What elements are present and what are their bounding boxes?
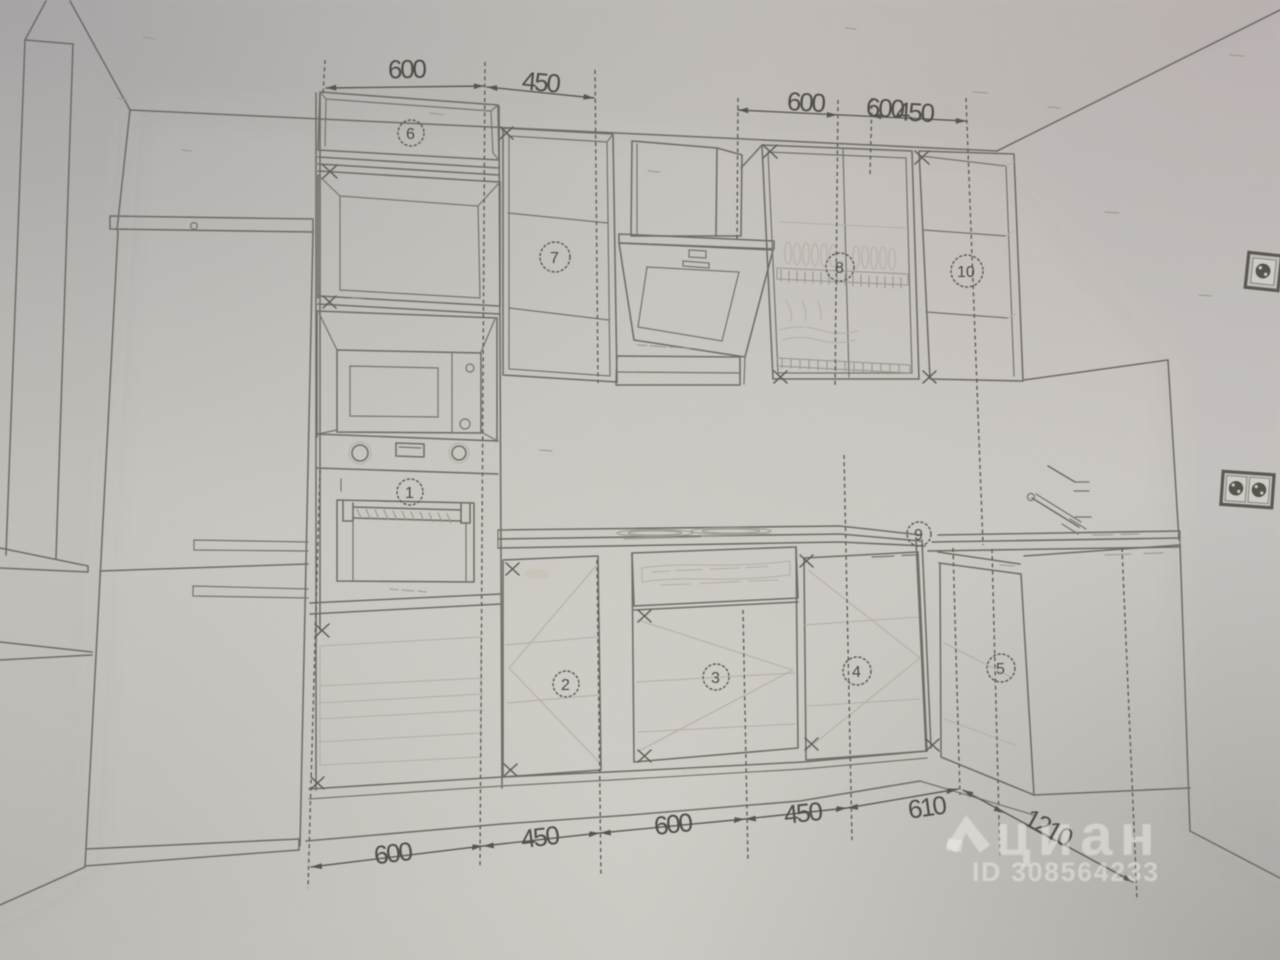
svg-text:450: 450: [519, 820, 561, 854]
svg-text:600: 600: [652, 807, 693, 841]
svg-text:10: 10: [957, 264, 975, 281]
svg-text:450: 450: [521, 65, 562, 98]
svg-text:1: 1: [405, 485, 414, 502]
svg-text:4: 4: [852, 664, 861, 681]
svg-text:6: 6: [406, 126, 415, 143]
svg-text:ID 308564233: ID 308564233: [972, 857, 1160, 887]
svg-text:600: 600: [372, 836, 414, 870]
svg-text:5: 5: [996, 661, 1005, 678]
svg-text:600: 600: [786, 86, 826, 118]
svg-text:8: 8: [835, 260, 844, 277]
svg-text:7: 7: [550, 250, 559, 267]
svg-text:600: 600: [388, 54, 427, 85]
svg-text:450: 450: [895, 96, 935, 128]
svg-text:3: 3: [711, 670, 720, 687]
svg-text:450: 450: [782, 796, 823, 830]
svg-text:2: 2: [561, 677, 570, 694]
svg-text:610: 610: [906, 790, 948, 825]
svg-text:9: 9: [914, 527, 923, 544]
